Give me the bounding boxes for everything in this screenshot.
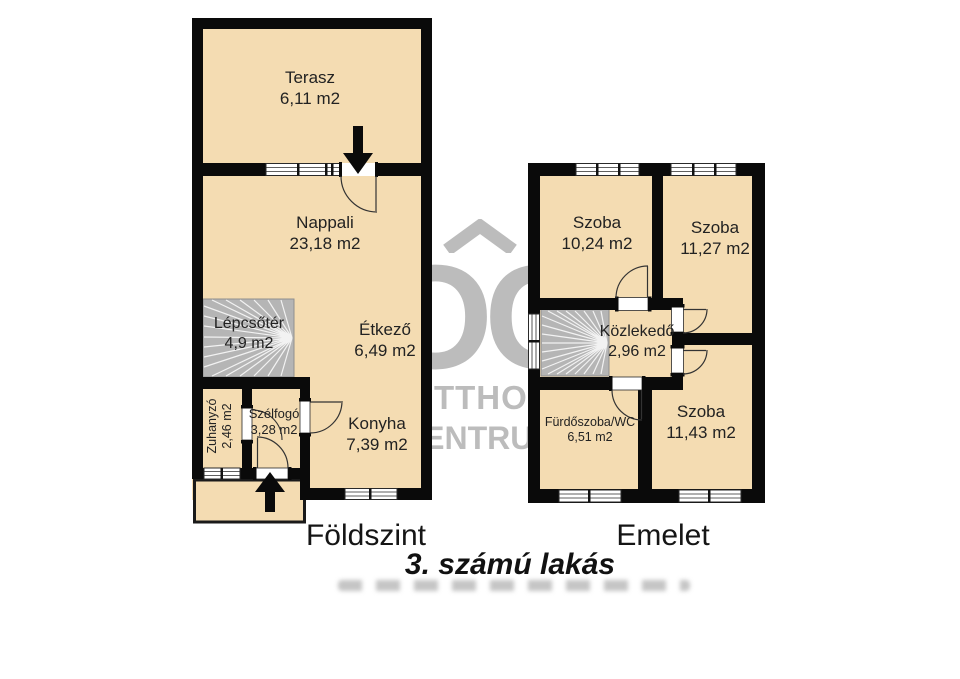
- room-name: Terasz: [280, 67, 340, 88]
- room-label-nappali: Nappali 23,18 m2: [290, 212, 361, 254]
- room-label-kozlekedo: Közlekedő 2,96 m2: [600, 322, 675, 362]
- room-name: Fürdőszoba/WC: [545, 415, 635, 430]
- room-label-szoba1: Szoba 10,24 m2: [562, 212, 633, 254]
- szoba3-window: [679, 490, 741, 502]
- room-name: Konyha: [346, 413, 407, 434]
- room-label-szelfogo: Szélfogó 3,28 m2: [249, 406, 300, 438]
- room-area: 2,96 m2: [600, 342, 675, 362]
- room-area: 10,24 m2: [562, 233, 633, 254]
- konyha-window: [345, 489, 397, 500]
- room-label-konyha: Konyha 7,39 m2: [346, 413, 407, 455]
- room-name: Közlekedő: [600, 322, 675, 342]
- room-name: Étkező: [354, 319, 415, 340]
- room-name: Nappali: [290, 212, 361, 233]
- upper-floor-caption: Emelet: [616, 519, 709, 553]
- furdoszoba-window: [559, 490, 621, 502]
- room-label-szoba3: Szoba 11,43 m2: [666, 401, 736, 443]
- stair-window: [529, 314, 540, 369]
- room-name: Szoba: [680, 217, 750, 238]
- room-label-zuhanyzo: Zuhanyzó 2,46 m2: [205, 399, 235, 454]
- room-area: 11,27 m2: [680, 238, 750, 259]
- room-name: Lépcsőtér: [214, 314, 284, 334]
- room-name: Szoba: [666, 401, 736, 422]
- entrance-porch: [195, 480, 305, 522]
- room-area: 11,43 m2: [666, 422, 736, 443]
- room-area: 7,39 m2: [346, 434, 407, 455]
- room-area: 23,18 m2: [290, 233, 361, 254]
- terrace-window: [266, 164, 341, 176]
- room-name: Szoba: [562, 212, 633, 233]
- room-area: 2,46 m2: [220, 399, 235, 454]
- page-title: 3. számú lakás: [405, 548, 615, 582]
- room-label-lepcsoter: Lépcsőtér 4,9 m2: [214, 314, 284, 354]
- room-name: Zuhanyzó: [205, 399, 220, 454]
- room-label-furdoszoba: Fürdőszoba/WC 6,51 m2: [545, 415, 635, 445]
- zuhanyzo-window: [204, 468, 240, 479]
- room-area: 6,51 m2: [545, 430, 635, 445]
- room-label-etkezo: Étkező 6,49 m2: [354, 319, 415, 361]
- room-name: Szélfogó: [249, 406, 300, 422]
- szoba2-window: [671, 164, 736, 176]
- room-area: 4,9 m2: [214, 334, 284, 354]
- room-label-terasz: Terasz 6,11 m2: [280, 67, 340, 109]
- szoba1-window: [576, 164, 639, 176]
- room-area: 6,11 m2: [280, 88, 340, 109]
- room-area: 6,49 m2: [354, 340, 415, 361]
- room-area: 3,28 m2: [249, 422, 300, 438]
- floorplan-page: OC OTTHON CENTRUM: [0, 0, 960, 679]
- room-label-szoba2: Szoba 11,27 m2: [680, 217, 750, 259]
